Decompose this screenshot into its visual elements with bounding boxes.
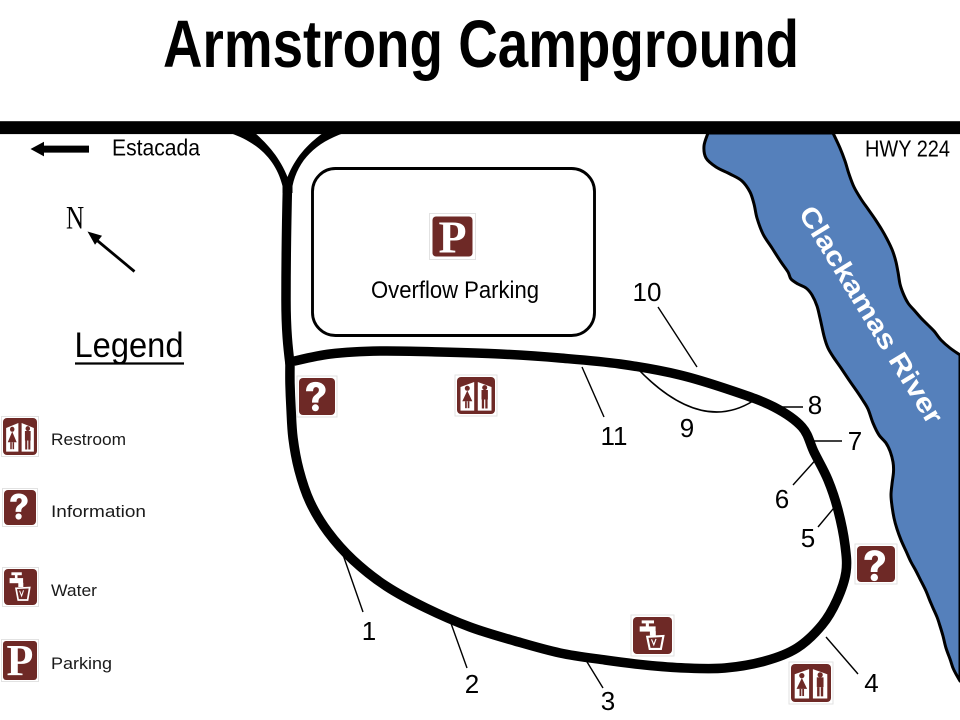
svg-text:11: 11: [601, 421, 628, 451]
svg-text:Restroom: Restroom: [51, 430, 126, 449]
svg-text:Armstrong Campground: Armstrong Campground: [163, 7, 799, 82]
svg-text:Estacada: Estacada: [112, 135, 201, 161]
svg-text:2: 2: [465, 669, 479, 699]
svg-text:1: 1: [362, 616, 376, 646]
svg-text:N: N: [66, 200, 84, 236]
svg-text:5: 5: [801, 523, 815, 553]
svg-text:10: 10: [633, 277, 662, 307]
svg-text:Legend: Legend: [75, 326, 184, 365]
svg-text:P: P: [7, 636, 34, 685]
svg-text:Water: Water: [51, 581, 97, 600]
svg-text:4: 4: [864, 668, 878, 698]
svg-text:Parking: Parking: [51, 654, 112, 673]
svg-text:P: P: [438, 211, 466, 262]
svg-text:8: 8: [808, 390, 822, 420]
svg-text:Overflow Parking: Overflow Parking: [371, 277, 539, 304]
svg-text:Information: Information: [51, 502, 146, 521]
svg-text:9: 9: [680, 413, 694, 443]
svg-text:6: 6: [775, 484, 789, 514]
svg-text:HWY 224: HWY 224: [865, 136, 950, 162]
svg-text:3: 3: [601, 686, 615, 716]
svg-text:7: 7: [848, 426, 862, 456]
